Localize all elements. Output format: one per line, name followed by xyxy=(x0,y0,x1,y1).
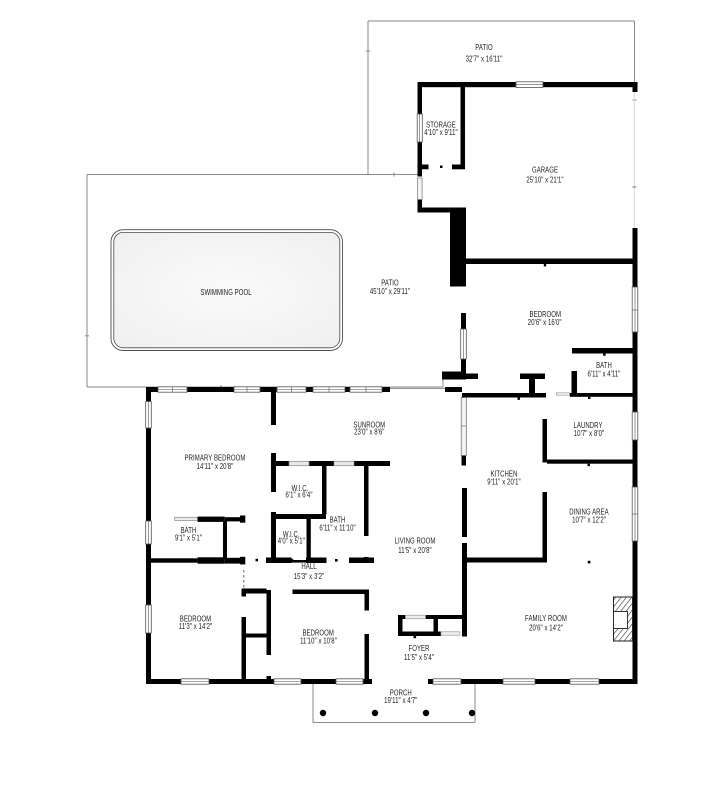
svg-text:15'3" x 3'2": 15'3" x 3'2" xyxy=(294,573,325,581)
svg-text:HALL: HALL xyxy=(301,563,316,571)
svg-text:23'0" x 8'6": 23'0" x 8'6" xyxy=(354,429,385,437)
svg-text:PRIMARY BEDROOM: PRIMARY BEDROOM xyxy=(185,455,246,463)
svg-text:45'10" x 29'11": 45'10" x 29'11" xyxy=(370,288,411,296)
svg-text:LAUNDRY: LAUNDRY xyxy=(573,422,602,430)
svg-text:11'5" x 20'8": 11'5" x 20'8" xyxy=(398,547,432,555)
svg-text:4'10" x 9'11": 4'10" x 9'11" xyxy=(424,129,458,137)
svg-text:6'1" x 6'4": 6'1" x 6'4" xyxy=(285,492,312,500)
svg-text:SWIMMING POOL: SWIMMING POOL xyxy=(200,289,251,297)
svg-text:9'11" x 20'1": 9'11" x 20'1" xyxy=(487,479,521,487)
svg-text:11'10" x 10'8": 11'10" x 10'8" xyxy=(300,638,337,646)
svg-text:19'11" x 4'7": 19'11" x 4'7" xyxy=(384,697,418,705)
svg-text:FOYER: FOYER xyxy=(408,645,429,653)
svg-text:FAMILY ROOM: FAMILY ROOM xyxy=(525,615,567,623)
svg-text:11'3" x 14'2": 11'3" x 14'2" xyxy=(179,624,213,632)
svg-text:BATH: BATH xyxy=(596,362,612,370)
svg-text:6'11" x 4'11": 6'11" x 4'11" xyxy=(588,371,621,379)
svg-text:BEDROOM: BEDROOM xyxy=(302,630,334,638)
svg-text:14'11" x 20'8": 14'11" x 20'8" xyxy=(197,463,234,471)
svg-text:25'10" x 21'1": 25'10" x 21'1" xyxy=(526,177,564,185)
svg-text:9'1" x 5'1": 9'1" x 5'1" xyxy=(175,535,202,543)
svg-text:6'11" x 11'10": 6'11" x 11'10" xyxy=(319,525,356,533)
svg-text:BEDROOM: BEDROOM xyxy=(180,616,212,624)
svg-text:KITCHEN: KITCHEN xyxy=(491,471,518,479)
svg-text:PATIO: PATIO xyxy=(381,280,399,288)
svg-text:20'6" x 14'2": 20'6" x 14'2" xyxy=(529,625,563,633)
svg-text:LIVING ROOM: LIVING ROOM xyxy=(395,538,436,546)
svg-text:20'6" x 16'0": 20'6" x 16'0" xyxy=(528,319,562,327)
svg-text:10'7" x 12'2": 10'7" x 12'2" xyxy=(572,517,606,525)
svg-text:BEDROOM: BEDROOM xyxy=(530,312,562,320)
svg-text:32'7" x 16'11": 32'7" x 16'11" xyxy=(466,56,503,64)
svg-text:11'5" x 5'4": 11'5" x 5'4" xyxy=(404,654,434,662)
svg-text:4'0" x 5'1": 4'0" x 5'1" xyxy=(278,538,305,546)
svg-text:GARAGE: GARAGE xyxy=(532,167,558,175)
svg-text:10'7" x 8'0": 10'7" x 8'0" xyxy=(574,431,605,439)
svg-text:PATIO: PATIO xyxy=(475,44,493,52)
